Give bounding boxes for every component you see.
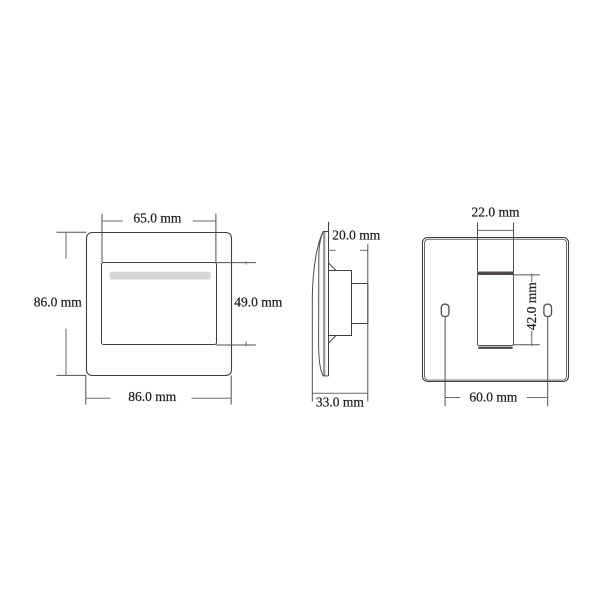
svg-text:33.0 mm: 33.0 mm	[316, 395, 365, 410]
svg-text:65.0 mm: 65.0 mm	[133, 211, 182, 226]
svg-text:86.0 mm: 86.0 mm	[34, 294, 83, 309]
svg-text:49.0 mm: 49.0 mm	[234, 295, 283, 310]
svg-text:60.0 mm: 60.0 mm	[469, 390, 518, 405]
svg-text:22.0 mm: 22.0 mm	[471, 205, 520, 220]
svg-text:86.0 mm: 86.0 mm	[128, 389, 177, 404]
svg-text:20.0 mm: 20.0 mm	[332, 228, 381, 243]
svg-text:42.0 mm: 42.0 mm	[524, 282, 539, 331]
